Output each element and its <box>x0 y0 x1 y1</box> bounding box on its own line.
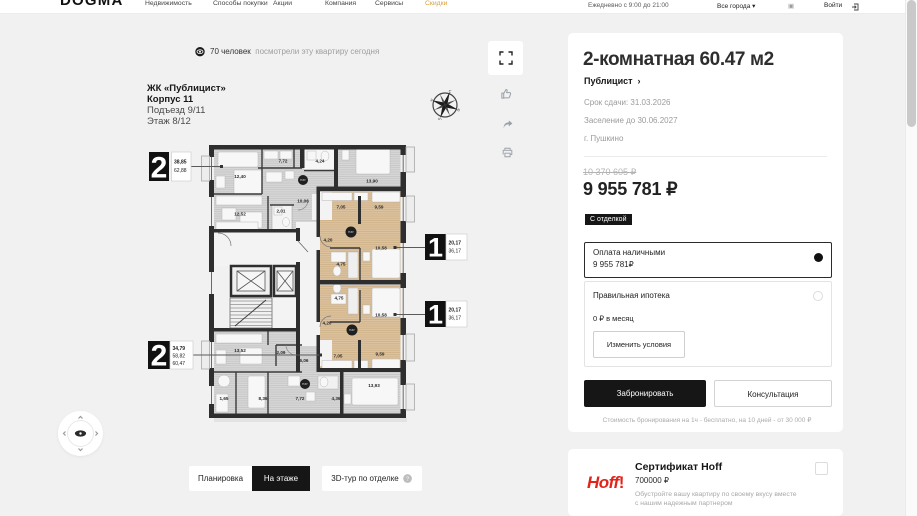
svg-text:ПЗУ: ПЗУ <box>348 230 354 234</box>
svg-text:ПЗУ: ПЗУ <box>349 328 355 332</box>
svg-text:7,72: 7,72 <box>296 396 305 401</box>
svg-text:В: В <box>457 108 460 113</box>
svg-text:ПЗУ: ПЗУ <box>302 382 308 386</box>
svg-text:38,85: 38,85 <box>174 160 187 166</box>
svg-text:62,88: 62,88 <box>174 168 187 174</box>
svg-text:2,01: 2,01 <box>277 209 286 214</box>
svg-text:36,17: 36,17 <box>449 249 462 255</box>
svg-text:9,59: 9,59 <box>375 205 384 210</box>
svg-text:ПЗУ: ПЗУ <box>300 178 306 182</box>
svg-text:10,58: 10,58 <box>375 246 387 251</box>
svg-text:12,40: 12,40 <box>234 174 246 179</box>
svg-text:4,20: 4,20 <box>324 238 333 243</box>
svg-text:13,93: 13,93 <box>368 383 380 388</box>
svg-text:10,58: 10,58 <box>375 313 387 318</box>
svg-text:2: 2 <box>151 340 168 373</box>
svg-text:1: 1 <box>428 233 443 263</box>
svg-text:2: 2 <box>151 152 168 185</box>
svg-text:4,75: 4,75 <box>335 296 344 301</box>
svg-text:4,36: 4,36 <box>332 396 341 401</box>
svg-text:12,52: 12,52 <box>234 212 246 217</box>
svg-text:2,09: 2,09 <box>277 350 286 355</box>
svg-text:13,90: 13,90 <box>366 179 378 184</box>
svg-text:60,47: 60,47 <box>173 361 186 367</box>
svg-text:7,05: 7,05 <box>334 354 343 359</box>
svg-text:4,20: 4,20 <box>323 321 332 326</box>
svg-text:4,24: 4,24 <box>316 159 325 164</box>
svg-text:Ю: Ю <box>437 117 442 120</box>
svg-text:9,59: 9,59 <box>376 352 385 357</box>
svg-text:1,65: 1,65 <box>220 396 229 401</box>
svg-text:20,17: 20,17 <box>449 241 462 247</box>
svg-text:?: ? <box>406 477 409 483</box>
svg-text:З: З <box>430 98 433 102</box>
svg-text:34,79: 34,79 <box>173 346 186 352</box>
svg-text:7,05: 7,05 <box>337 205 346 210</box>
svg-text:20,17: 20,17 <box>449 308 462 314</box>
svg-text:58,82: 58,82 <box>173 354 186 360</box>
svg-text:13,52: 13,52 <box>234 348 246 353</box>
svg-text:8,36: 8,36 <box>259 396 268 401</box>
svg-text:10,06: 10,06 <box>297 199 309 204</box>
svg-text:7,72: 7,72 <box>279 159 288 164</box>
svg-text:36,17: 36,17 <box>449 316 462 322</box>
svg-text:4,75: 4,75 <box>337 262 346 267</box>
svg-text:1: 1 <box>428 300 443 330</box>
svg-text:6,06: 6,06 <box>300 358 309 363</box>
